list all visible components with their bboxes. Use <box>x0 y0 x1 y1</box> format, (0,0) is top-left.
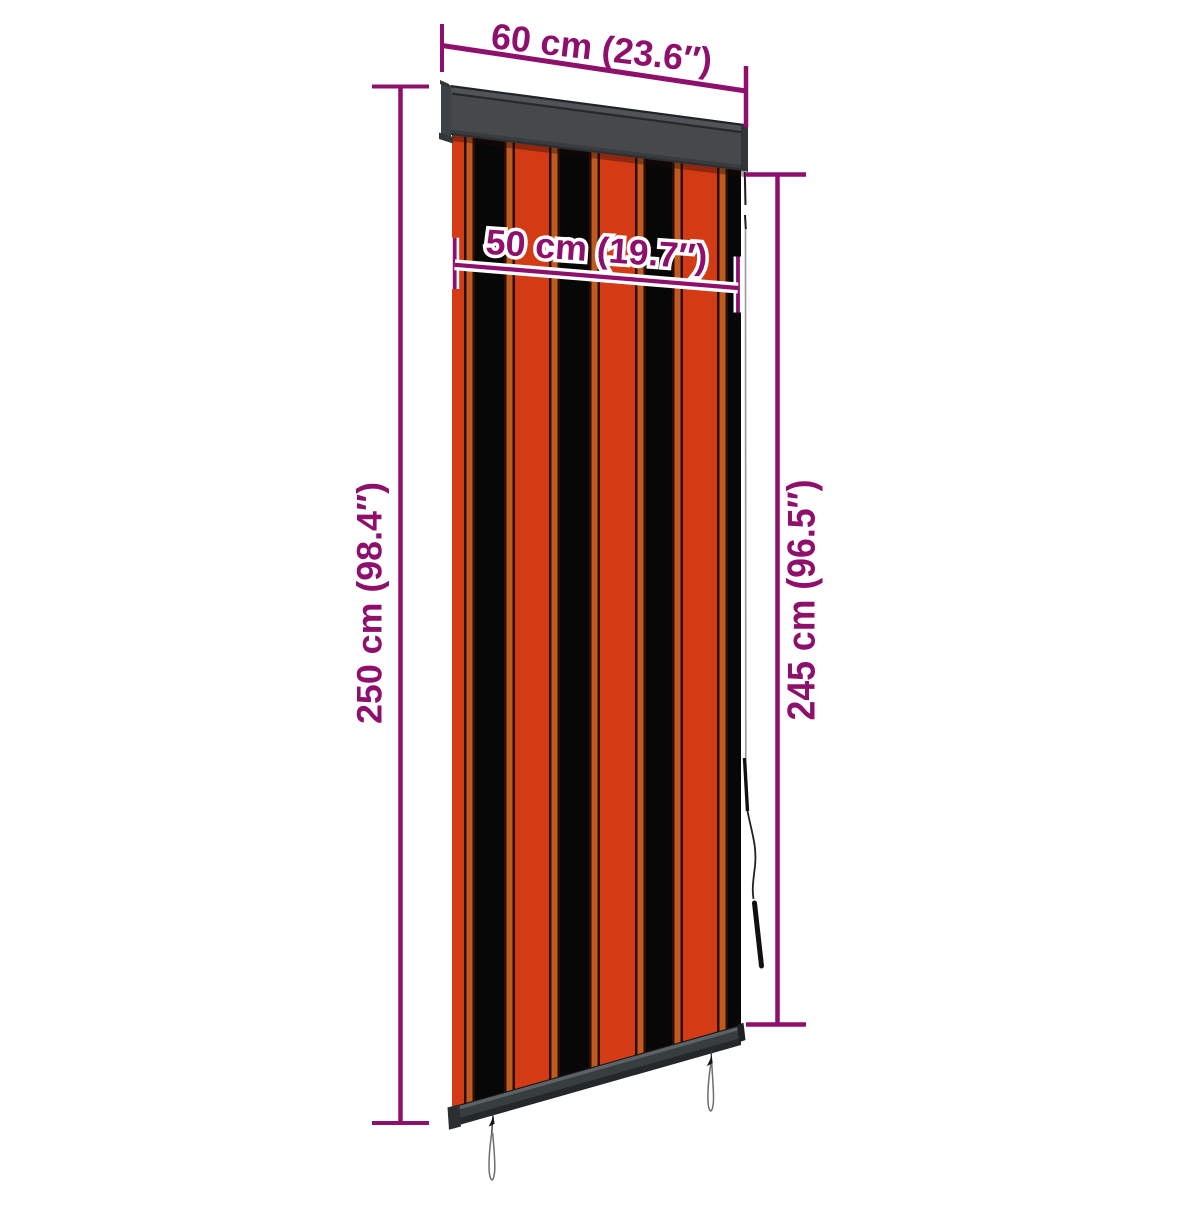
svg-text:250 cm (98.4″): 250 cm (98.4″) <box>350 482 390 724</box>
svg-text:245 cm (96.5″): 245 cm (96.5″) <box>781 480 824 721</box>
